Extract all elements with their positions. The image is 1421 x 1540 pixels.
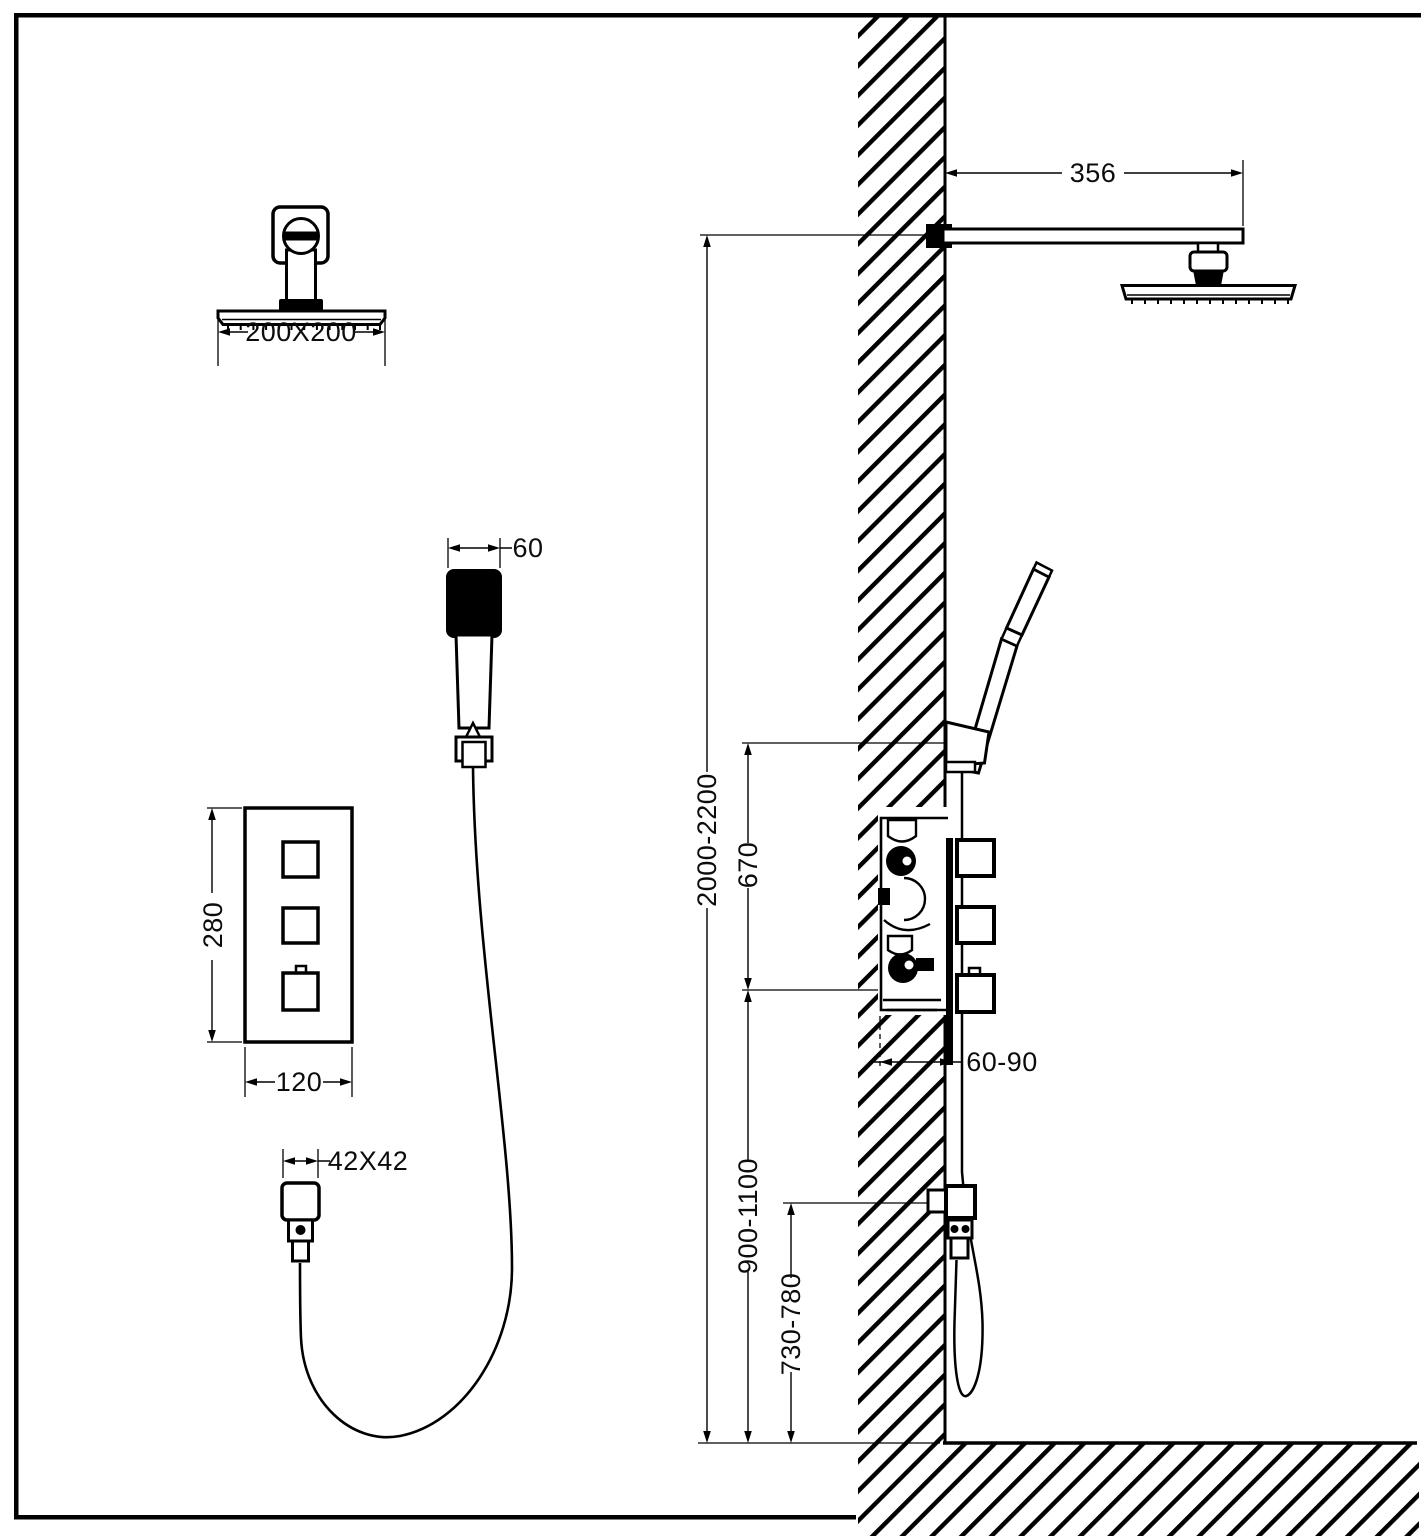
technical-drawing-page: 200X200 60 280 120 42X42 356 2000-2200 6… — [0, 0, 1421, 1540]
shower-arm-bar — [943, 229, 1243, 243]
valve-lower-port-center — [905, 961, 914, 970]
valve-upper-port-center — [903, 857, 912, 866]
frame-left — [14, 13, 19, 1519]
shower-installation-diagram: 200X200 60 280 120 42X42 356 2000-2200 6… — [0, 0, 1421, 1540]
elbow-nut-dot-right — [962, 1225, 970, 1233]
outlet-square — [282, 1183, 319, 1220]
outlet-nipple — [293, 1241, 309, 1261]
label-arm-length-dim: 356 — [1070, 158, 1117, 188]
valve-left-inlet — [878, 888, 890, 905]
label-outlet-height-dim: 730-780 — [776, 1273, 806, 1376]
side-knob-top — [957, 840, 994, 876]
label-panel-width-dim: 120 — [276, 1067, 323, 1097]
label-front-handshower-dim: 60 — [512, 533, 543, 563]
wall-holder-base — [946, 762, 975, 772]
hand-shower-head — [447, 570, 501, 637]
front-view-mixer-panel — [245, 808, 352, 1042]
valve-top-cartridge — [888, 820, 916, 842]
hand-shower-handle — [456, 635, 492, 728]
mixer-trim-plate — [946, 838, 953, 1065]
elbow-box — [946, 1186, 975, 1218]
mixer-knob-top — [283, 842, 318, 877]
elbow-nut-dot-left — [951, 1225, 959, 1233]
side-head-plate — [1122, 286, 1295, 300]
valve-outlet-stub — [916, 958, 934, 971]
mixer-knob-bottom — [283, 973, 318, 1010]
label-front-head-dim: 200X200 — [245, 317, 357, 347]
valve-lower-port — [888, 953, 918, 983]
label-panel-height-dim: 280 — [198, 902, 228, 949]
ball-joint-band — [285, 232, 318, 241]
label-embed-depth-dim: 60-90 — [966, 1047, 1038, 1077]
mixer-knob-middle — [283, 908, 318, 943]
side-knob-middle — [957, 907, 994, 943]
side-knob-bottom — [957, 975, 994, 1012]
elbow-nipple — [951, 1238, 968, 1258]
arm-joint-block — [1190, 252, 1227, 271]
label-front-outlet-dim: 42X42 — [328, 1146, 409, 1176]
frame-top — [14, 13, 1421, 18]
label-holder-to-mixer-dim: 670 — [733, 842, 763, 889]
valve-lower-cartridge — [888, 936, 912, 955]
outlet-ball — [296, 1225, 306, 1235]
side-view-mixer-valve — [878, 807, 948, 1015]
head-flange — [279, 299, 323, 311]
label-overall-height-dim: 2000-2200 — [692, 773, 722, 907]
frame-bottom — [14, 1515, 856, 1520]
hose-connector-inner — [463, 742, 486, 767]
head-stem — [287, 250, 316, 301]
label-mixer-height-dim: 900-1100 — [733, 1158, 763, 1274]
arm-joint-collar — [1193, 270, 1224, 286]
